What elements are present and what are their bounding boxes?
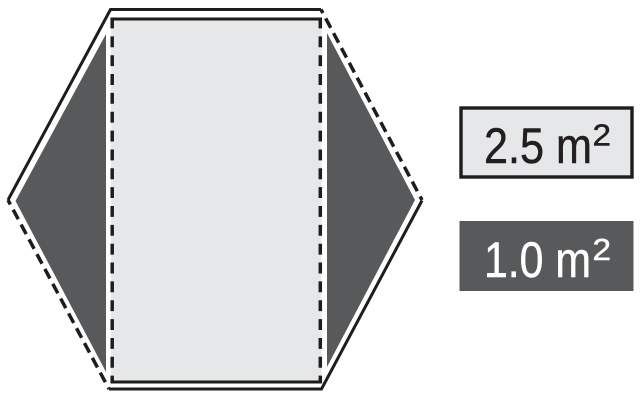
svg-text:2.5 m: 2.5 m (484, 118, 592, 174)
svg-text:1.0 m: 1.0 m (484, 232, 591, 288)
svg-text:2: 2 (593, 119, 612, 153)
svg-text:2: 2 (593, 233, 612, 267)
